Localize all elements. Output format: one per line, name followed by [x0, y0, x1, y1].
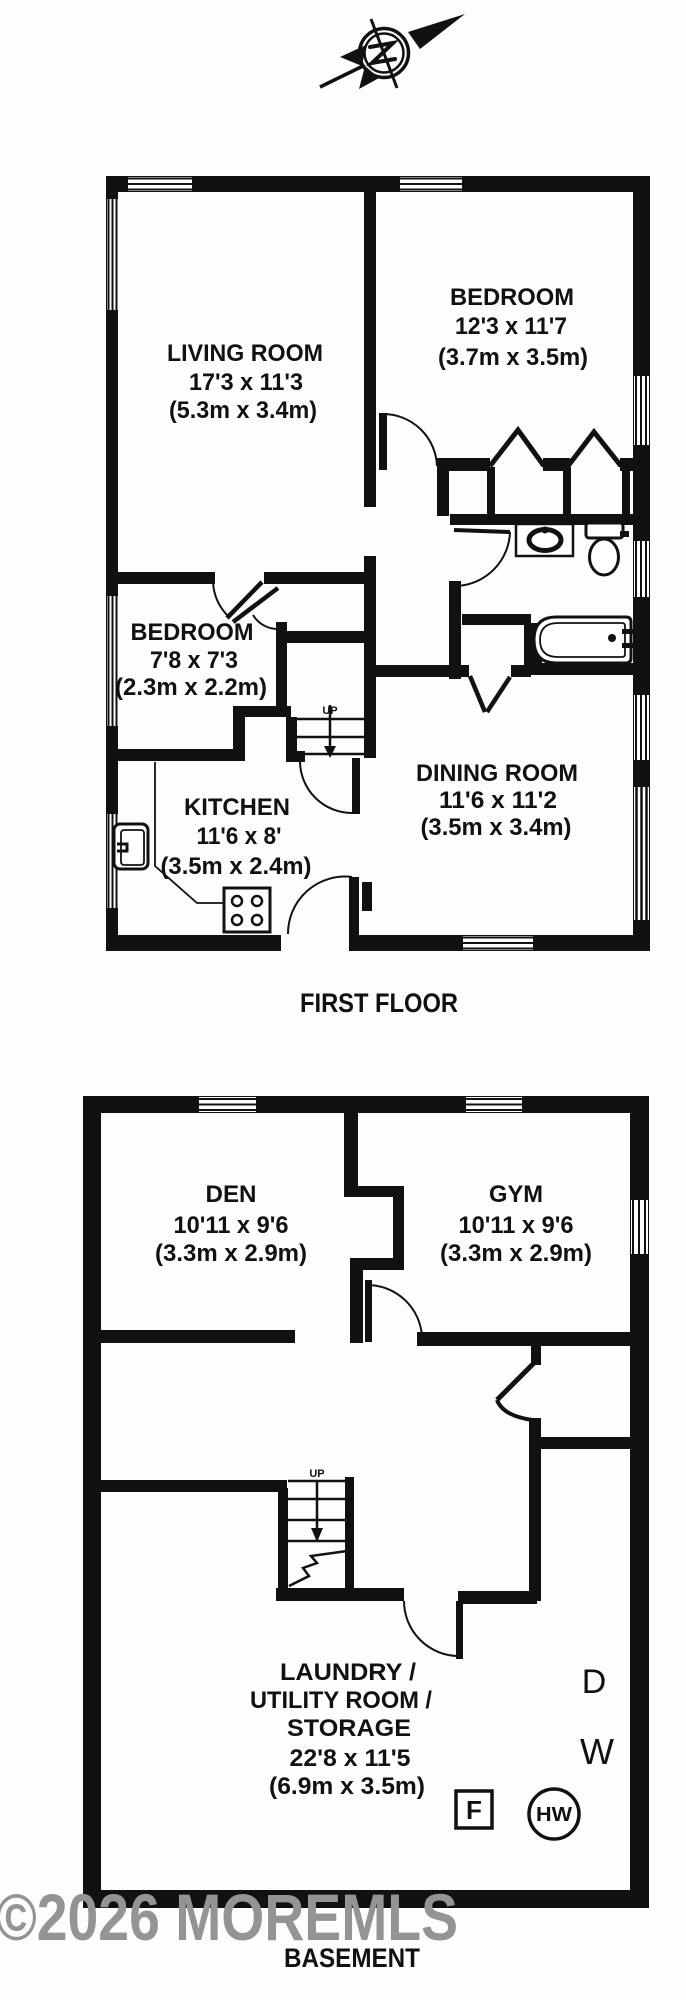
svg-text:DEN: DEN: [206, 1181, 257, 1208]
svg-text:UTILITY ROOM /: UTILITY ROOM /: [250, 1687, 432, 1714]
svg-text:BEDROOM: BEDROOM: [450, 284, 574, 311]
svg-text:UP: UP: [322, 705, 337, 717]
svg-text:7'8 x 7'3: 7'8 x 7'3: [150, 647, 238, 674]
svg-text:17'3 x 11'3: 17'3 x 11'3: [189, 369, 303, 396]
svg-text:UP: UP: [309, 1468, 324, 1480]
svg-text:LIVING ROOM: LIVING ROOM: [167, 340, 323, 367]
svg-text:(3.5m x 3.4m): (3.5m x 3.4m): [421, 814, 572, 841]
svg-text:KITCHEN: KITCHEN: [184, 794, 290, 821]
svg-text:11'6 x 11'2: 11'6 x 11'2: [439, 787, 557, 814]
svg-text:W: W: [580, 1731, 614, 1772]
svg-text:(3.3m x 2.9m): (3.3m x 2.9m): [440, 1240, 592, 1267]
svg-text:10'11 x 9'6: 10'11 x 9'6: [174, 1212, 289, 1239]
svg-text:BEDROOM: BEDROOM: [131, 619, 254, 646]
svg-text:(5.3m x 3.4m): (5.3m x 3.4m): [169, 397, 317, 424]
svg-text:DINING ROOM: DINING ROOM: [416, 760, 578, 787]
svg-text:LAUNDRY /: LAUNDRY /: [280, 1659, 416, 1686]
svg-text:GYM: GYM: [489, 1181, 543, 1208]
svg-text:FIRST FLOOR: FIRST FLOOR: [300, 988, 458, 1018]
svg-text:(6.9m x 3.5m): (6.9m x 3.5m): [269, 1773, 425, 1800]
svg-text:D: D: [582, 1663, 607, 1701]
svg-text:(3.7m x 3.5m): (3.7m x 3.5m): [438, 344, 588, 371]
svg-text:22'8 x 11'5: 22'8 x 11'5: [290, 1745, 411, 1772]
svg-text:(3.3m x 2.9m): (3.3m x 2.9m): [155, 1240, 307, 1267]
svg-text:11'6 x 8': 11'6 x 8': [197, 823, 282, 850]
svg-text:(2.3m x 2.2m): (2.3m x 2.2m): [115, 674, 267, 701]
svg-text:©2026 MOREMLS: ©2026 MOREMLS: [0, 1880, 458, 1954]
svg-text:10'11 x 9'6: 10'11 x 9'6: [459, 1212, 574, 1239]
svg-text:(3.5m x 2.4m): (3.5m x 2.4m): [161, 853, 312, 880]
svg-text:12'3 x 11'7: 12'3 x 11'7: [455, 313, 567, 340]
svg-text:F: F: [466, 1795, 482, 1825]
svg-text:HW: HW: [536, 1804, 572, 1826]
svg-text:STORAGE: STORAGE: [287, 1715, 411, 1742]
